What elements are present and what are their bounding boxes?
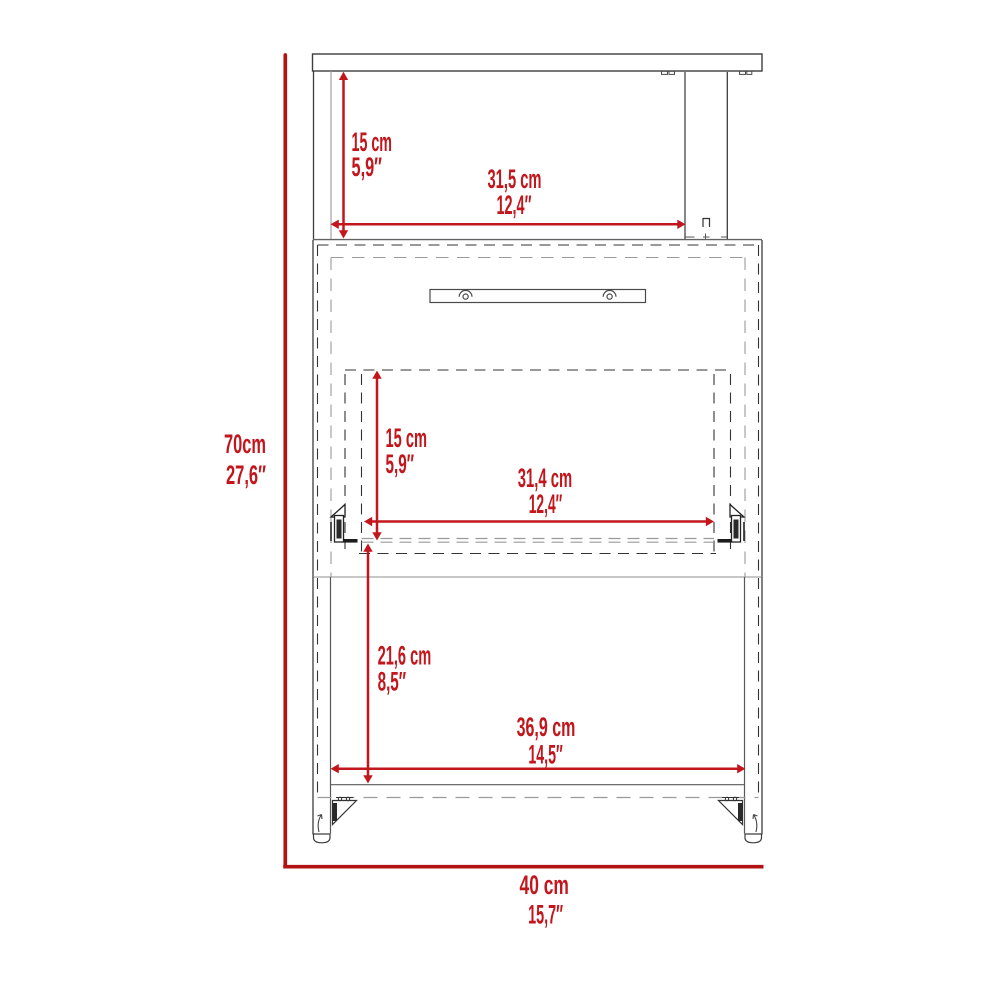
svg-text:5,9″: 5,9″ (352, 152, 383, 182)
svg-text:8,5″: 8,5″ (378, 667, 407, 697)
svg-text:5,9″: 5,9″ (386, 449, 415, 479)
svg-text:15,7″: 15,7″ (528, 900, 563, 930)
svg-text:14,5″: 14,5″ (528, 740, 563, 770)
svg-text:36,9 cm: 36,9 cm (517, 712, 576, 742)
svg-text:12,4″: 12,4″ (497, 190, 532, 220)
svg-text:40 cm: 40 cm (520, 870, 569, 900)
svg-text:70cm: 70cm (224, 429, 266, 459)
svg-text:27,6″: 27,6″ (226, 460, 266, 490)
svg-text:12,4″: 12,4″ (529, 489, 563, 519)
